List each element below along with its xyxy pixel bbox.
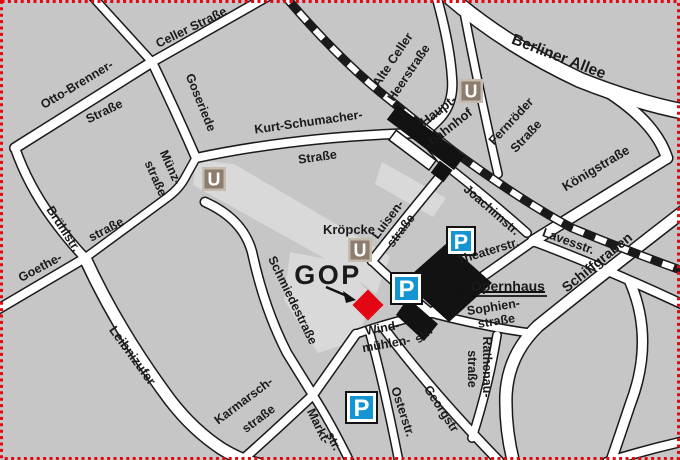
parking-icon-letter: P [399, 276, 415, 303]
parking-icon: P [390, 272, 423, 305]
ubahn-icon-letter: U [465, 82, 478, 102]
label-rathenau-2: straße [465, 350, 479, 388]
label-kroepcke: Kröpcke [323, 222, 375, 237]
ubahn-icon-letter: U [208, 170, 221, 190]
label-bruehlstr: Brühlstr. [43, 203, 83, 254]
label-rathenau-1: Rathenau- [480, 336, 494, 397]
label-goseriede: Goseriede [183, 72, 219, 134]
map-canvas: UUUPPP Celler StraßeOtto-Brenner-StraßeG… [0, 0, 680, 460]
ubahn-icon: U [202, 167, 226, 191]
city-map: UUUPPP Celler StraßeOtto-Brenner-StraßeG… [0, 0, 680, 460]
label-gop: GOP [294, 260, 362, 290]
ubahn-icon-letter: U [354, 241, 367, 261]
label-opernhaus: Opernhaus [471, 278, 545, 294]
street-north [91, 0, 152, 62]
label-kurt-schumacher-2: Straße [297, 147, 338, 166]
parking-icon-letter: P [354, 395, 370, 422]
ubahn-icon: U [459, 79, 483, 103]
parking-icon: P [345, 391, 378, 424]
ubahn-icon: U [348, 238, 372, 262]
street-leibnizufer [85, 258, 258, 460]
